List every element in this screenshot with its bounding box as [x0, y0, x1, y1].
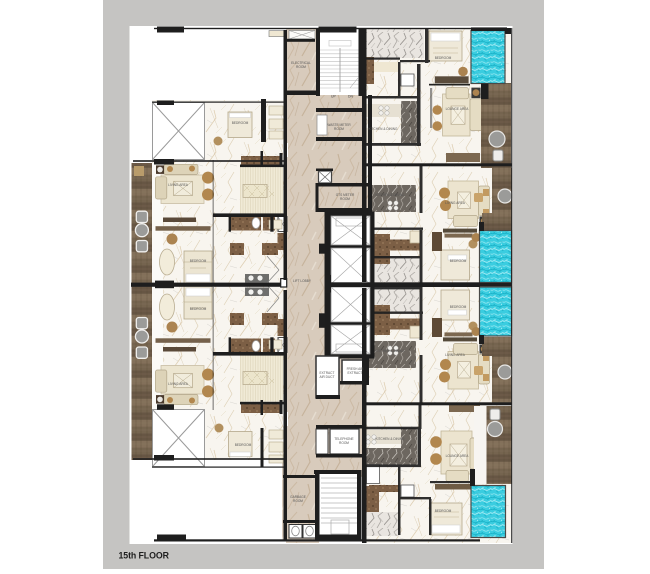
svg-text:15th FLOOR: 15th FLOOR — [119, 551, 170, 561]
svg-text:ROOM: ROOM — [293, 499, 303, 503]
svg-text:DN: DN — [348, 95, 353, 99]
svg-text:LIVING AREA: LIVING AREA — [445, 353, 466, 357]
svg-text:ROOM: ROOM — [340, 197, 350, 201]
svg-text:ROOM: ROOM — [339, 441, 349, 445]
svg-text:BEDROOM: BEDROOM — [190, 259, 207, 263]
svg-text:EXTRACT: EXTRACT — [348, 371, 363, 375]
svg-text:LIFT LOBBY: LIFT LOBBY — [293, 279, 312, 283]
svg-text:ROOM: ROOM — [296, 65, 306, 69]
svg-text:ROOM: ROOM — [334, 127, 344, 131]
svg-text:BEDROOM: BEDROOM — [435, 509, 452, 513]
svg-text:LIVING AREA: LIVING AREA — [168, 382, 189, 386]
svg-text:LIVING AREA: LIVING AREA — [445, 201, 466, 205]
svg-text:BEDROOM: BEDROOM — [235, 443, 252, 447]
svg-text:AIR DUCT: AIR DUCT — [319, 375, 334, 379]
svg-text:BEDROOM: BEDROOM — [190, 307, 207, 311]
svg-text:LOUNGE AREA: LOUNGE AREA — [446, 107, 470, 111]
svg-text:LOUNGE AREA: LOUNGE AREA — [446, 454, 470, 458]
svg-text:BEDROOM: BEDROOM — [450, 305, 467, 309]
svg-text:KITCHEN & DINING: KITCHEN & DINING — [375, 349, 405, 353]
svg-text:LIVING AREA: LIVING AREA — [168, 183, 189, 187]
svg-text:UP: UP — [331, 95, 336, 99]
svg-text:BEDROOM: BEDROOM — [450, 259, 467, 263]
svg-text:BEDROOM: BEDROOM — [435, 56, 452, 60]
svg-text:BEDROOM: BEDROOM — [232, 121, 249, 125]
svg-text:KITCHEN & DINING: KITCHEN & DINING — [375, 193, 405, 197]
svg-text:KITCHEN & DINING: KITCHEN & DINING — [368, 127, 398, 131]
svg-text:KITCHEN & DINING: KITCHEN & DINING — [375, 437, 405, 441]
